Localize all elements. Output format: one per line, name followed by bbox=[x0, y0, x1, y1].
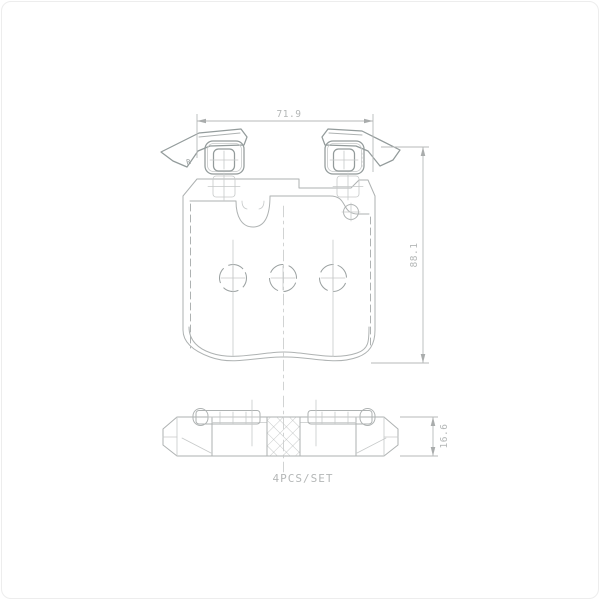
thickness-arrow-top bbox=[431, 417, 436, 426]
product-drawing-canvas: R bbox=[0, 0, 600, 600]
side-left-block bbox=[163, 417, 212, 456]
left-ear-inner-line bbox=[208, 144, 242, 172]
right-wing-fold-line bbox=[329, 133, 362, 135]
right-ear-inner-line bbox=[328, 144, 362, 172]
height-arrow-bottom bbox=[421, 354, 426, 363]
friction-top-contour bbox=[190, 196, 369, 227]
friction-groove-circles bbox=[215, 260, 350, 296]
height-arrow-top bbox=[421, 147, 426, 156]
brake-pad-technical-drawing: R bbox=[0, 0, 600, 600]
side-left-block-diagonal bbox=[182, 438, 211, 453]
right-abutment-square bbox=[333, 173, 363, 200]
thickness-arrow-bottom bbox=[431, 447, 436, 456]
side-view bbox=[163, 396, 398, 472]
front-view: R bbox=[161, 129, 400, 390]
dimension-thickness: 16.6 bbox=[400, 417, 450, 456]
u-notch-hook-right bbox=[259, 201, 264, 209]
thickness-value: 16.6 bbox=[439, 424, 450, 449]
width-arrow-right bbox=[364, 119, 373, 124]
width-arrow-left bbox=[197, 119, 206, 124]
friction-bottom-contour bbox=[189, 327, 369, 356]
left-abutment-square bbox=[208, 173, 240, 200]
height-value: 88.1 bbox=[409, 243, 420, 268]
pieces-per-set-label: 4PCS/SET bbox=[273, 472, 334, 485]
left-wing-fold-line bbox=[199, 133, 240, 137]
width-value: 71.9 bbox=[277, 109, 302, 120]
left-wing-stamp: R bbox=[186, 158, 192, 167]
side-right-block-diagonal bbox=[357, 438, 386, 453]
u-notch-hook-left bbox=[242, 201, 247, 209]
dimension-height: 88.1 bbox=[371, 147, 429, 363]
